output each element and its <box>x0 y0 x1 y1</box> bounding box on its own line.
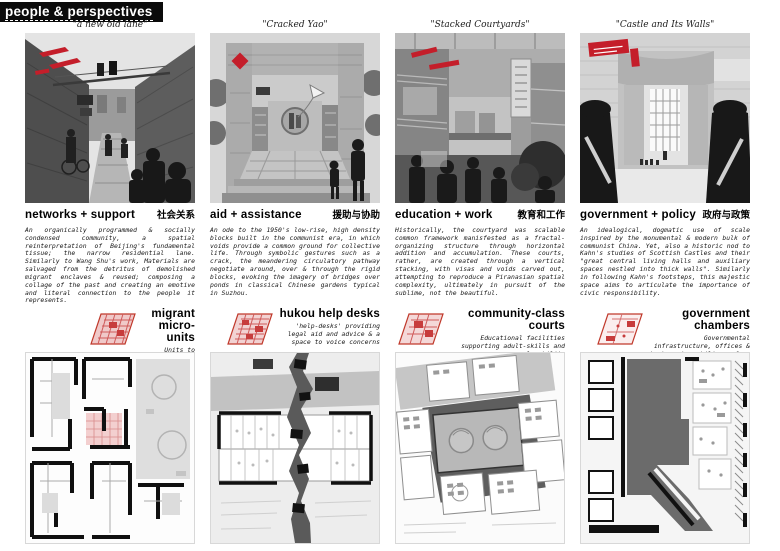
program-title: community-class courts <box>447 308 565 332</box>
chambers-plan-image <box>580 352 750 544</box>
red-plan-stamp-icon <box>395 310 447 348</box>
section-title-chinese: 政府与政策 <box>702 207 750 221</box>
section-body: An idealogical, dogmatic use of scale in… <box>580 227 750 297</box>
red-plan-stamp-icon <box>594 310 646 348</box>
poster-board: people & perspectives "a new old lane" <box>0 0 780 551</box>
section-title: networks + support <box>25 209 135 221</box>
gate-render-illustration <box>210 33 380 203</box>
class-courts-plan-image <box>395 352 565 544</box>
program-header-text: hukou help desks 'help-desks' providing … <box>276 308 380 346</box>
red-plan-stamp-icon <box>224 310 276 348</box>
section-body: An organically programmed & socially con… <box>25 227 195 305</box>
program-header-text: community-class courts Educational facil… <box>447 308 565 358</box>
program-header: hukou help desks 'help-desks' providing … <box>210 308 380 352</box>
title-row: networks + support 社会关系 <box>25 207 195 221</box>
chambers-plan-drawing <box>581 353 749 543</box>
section-government-policy: "Castle and Its Walls" <box>580 18 750 305</box>
stacked-courtyard-illustration <box>395 33 565 203</box>
caption-cracked-yao: "Cracked Yao" <box>210 18 380 33</box>
program-header: government chambers Governmental infrast… <box>580 308 750 352</box>
title-row: aid + assistance 援助与协助 <box>210 207 380 221</box>
section-body: Historically, the courtyard was scalable… <box>395 227 565 297</box>
micro-units-plan-image <box>25 352 195 544</box>
red-plan-stamp-icon <box>87 310 139 348</box>
program-title: government chambers <box>646 308 750 332</box>
help-desks-plan-image <box>210 352 380 544</box>
caption-stacked-courtyards: "Stacked Courtyards" <box>395 18 565 33</box>
section-community-class-courts: community-class courts Educational facil… <box>395 308 565 544</box>
section-networks-support: "a new old lane" <box>25 18 195 305</box>
program-desc: 'help-desks' providing legal aid and adv… <box>276 322 380 346</box>
section-title-chinese: 教育和工作 <box>517 207 565 221</box>
programs-row: migrant micro-units Units to appropriate… <box>25 308 750 544</box>
section-education-work: "Stacked Courtyards" <box>395 18 565 305</box>
help-desks-plan-drawing <box>211 353 379 543</box>
section-title-chinese: 援助与协助 <box>332 207 380 221</box>
section-title: government + policy <box>580 209 696 221</box>
title-row: government + policy 政府与政策 <box>580 207 750 221</box>
program-header: migrant micro-units Units to appropriate… <box>25 308 195 352</box>
caption-a-new-old-lane: "a new old lane" <box>25 18 195 33</box>
program-title: migrant micro-units <box>139 308 195 344</box>
perspectives-row: "a new old lane" <box>25 18 750 305</box>
section-aid-assistance: "Cracked Yao" <box>210 18 380 305</box>
title-row: education + work 教育和工作 <box>395 207 565 221</box>
castle-hall-illustration <box>580 33 750 203</box>
section-title: aid + assistance <box>210 209 302 221</box>
section-body: An ode to the 1950's low-rise, high dens… <box>210 227 380 297</box>
micro-units-plan-drawing <box>26 353 194 543</box>
section-title: education + work <box>395 209 492 221</box>
gate-render-image <box>210 33 380 203</box>
caption-castle-and-its-walls: "Castle and Its Walls" <box>580 18 750 33</box>
stacked-courtyard-render-image <box>395 33 565 203</box>
program-header: community-class courts Educational facil… <box>395 308 565 352</box>
class-courts-plan-drawing <box>396 353 564 543</box>
section-government-chambers: government chambers Governmental infrast… <box>580 308 750 544</box>
section-migrant-micro-units: migrant micro-units Units to appropriate… <box>25 308 195 544</box>
section-title-chinese: 社会关系 <box>157 207 195 221</box>
lane-render-image <box>25 33 195 203</box>
program-title: hukou help desks <box>276 308 380 320</box>
program-header-text: government chambers Governmental infrast… <box>646 308 750 358</box>
castle-hall-render-image <box>580 33 750 203</box>
section-hukou-help-desks: hukou help desks 'help-desks' providing … <box>210 308 380 544</box>
lane-render-illustration <box>25 33 195 203</box>
